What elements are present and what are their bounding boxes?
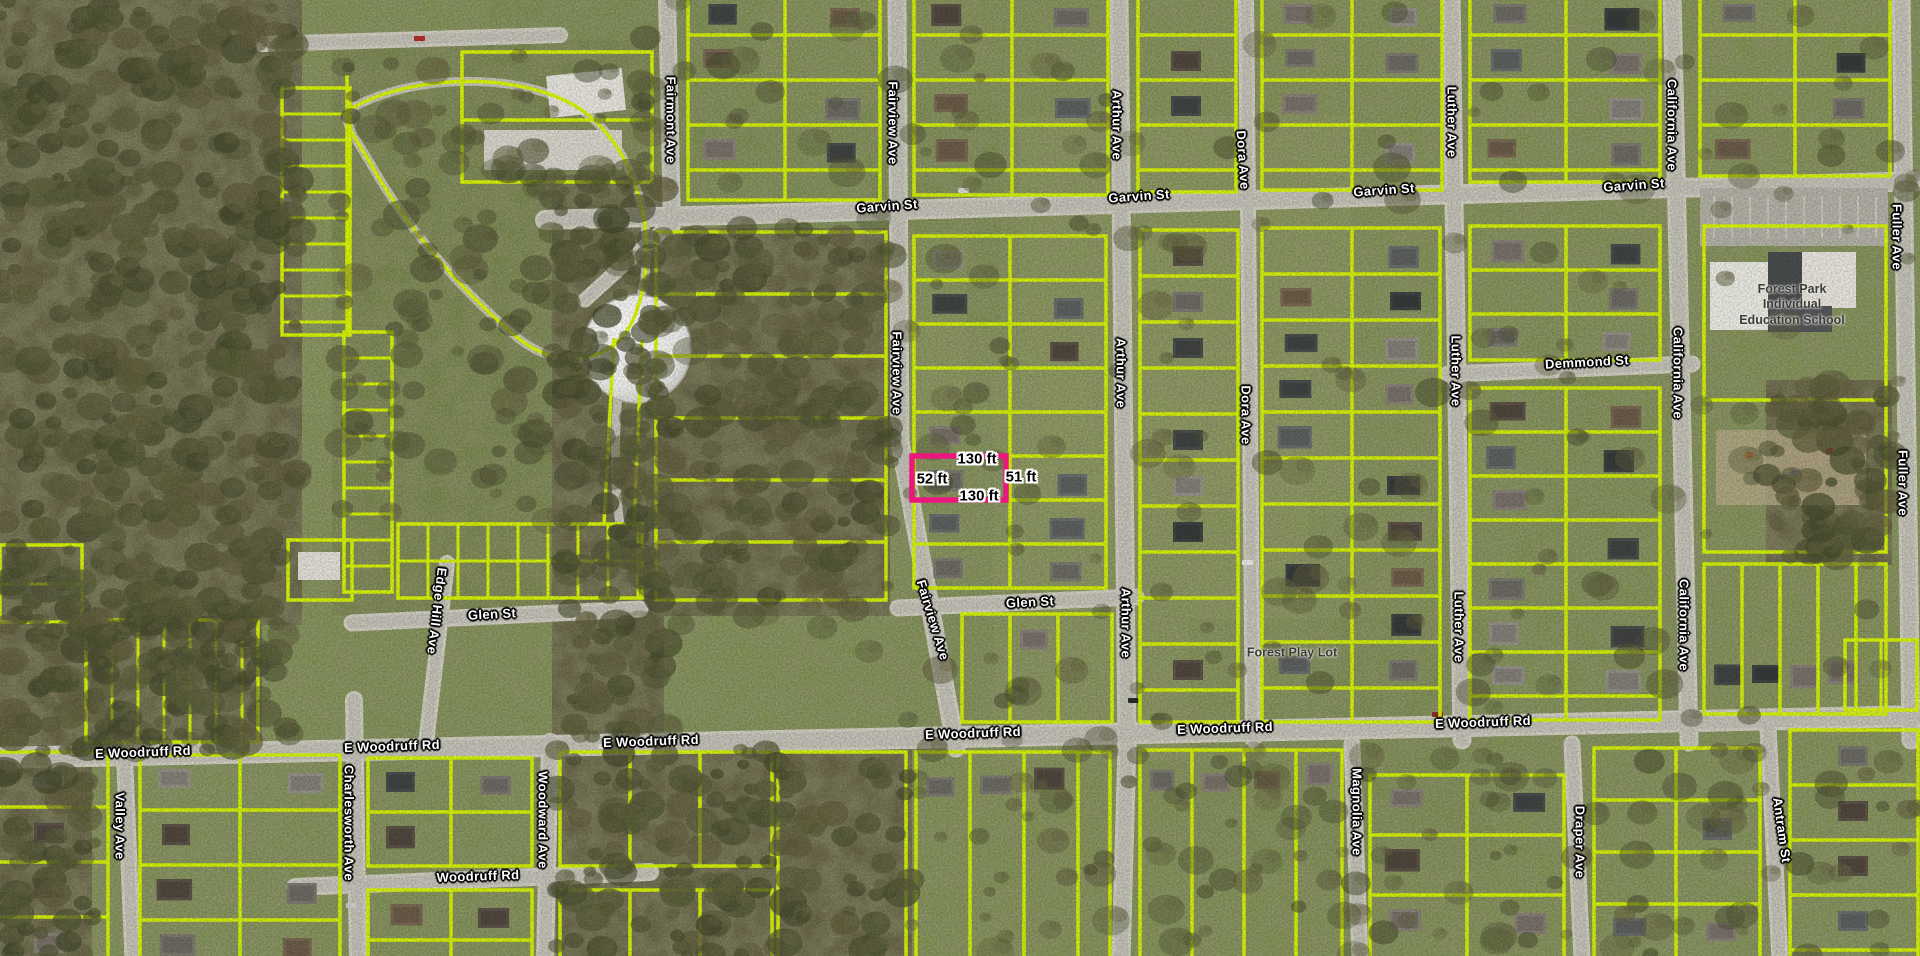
map-canvas[interactable]: Garvin StGarvin StGarvin StGarvin StFair… xyxy=(0,0,1920,956)
aerial-imagery xyxy=(0,0,1920,956)
